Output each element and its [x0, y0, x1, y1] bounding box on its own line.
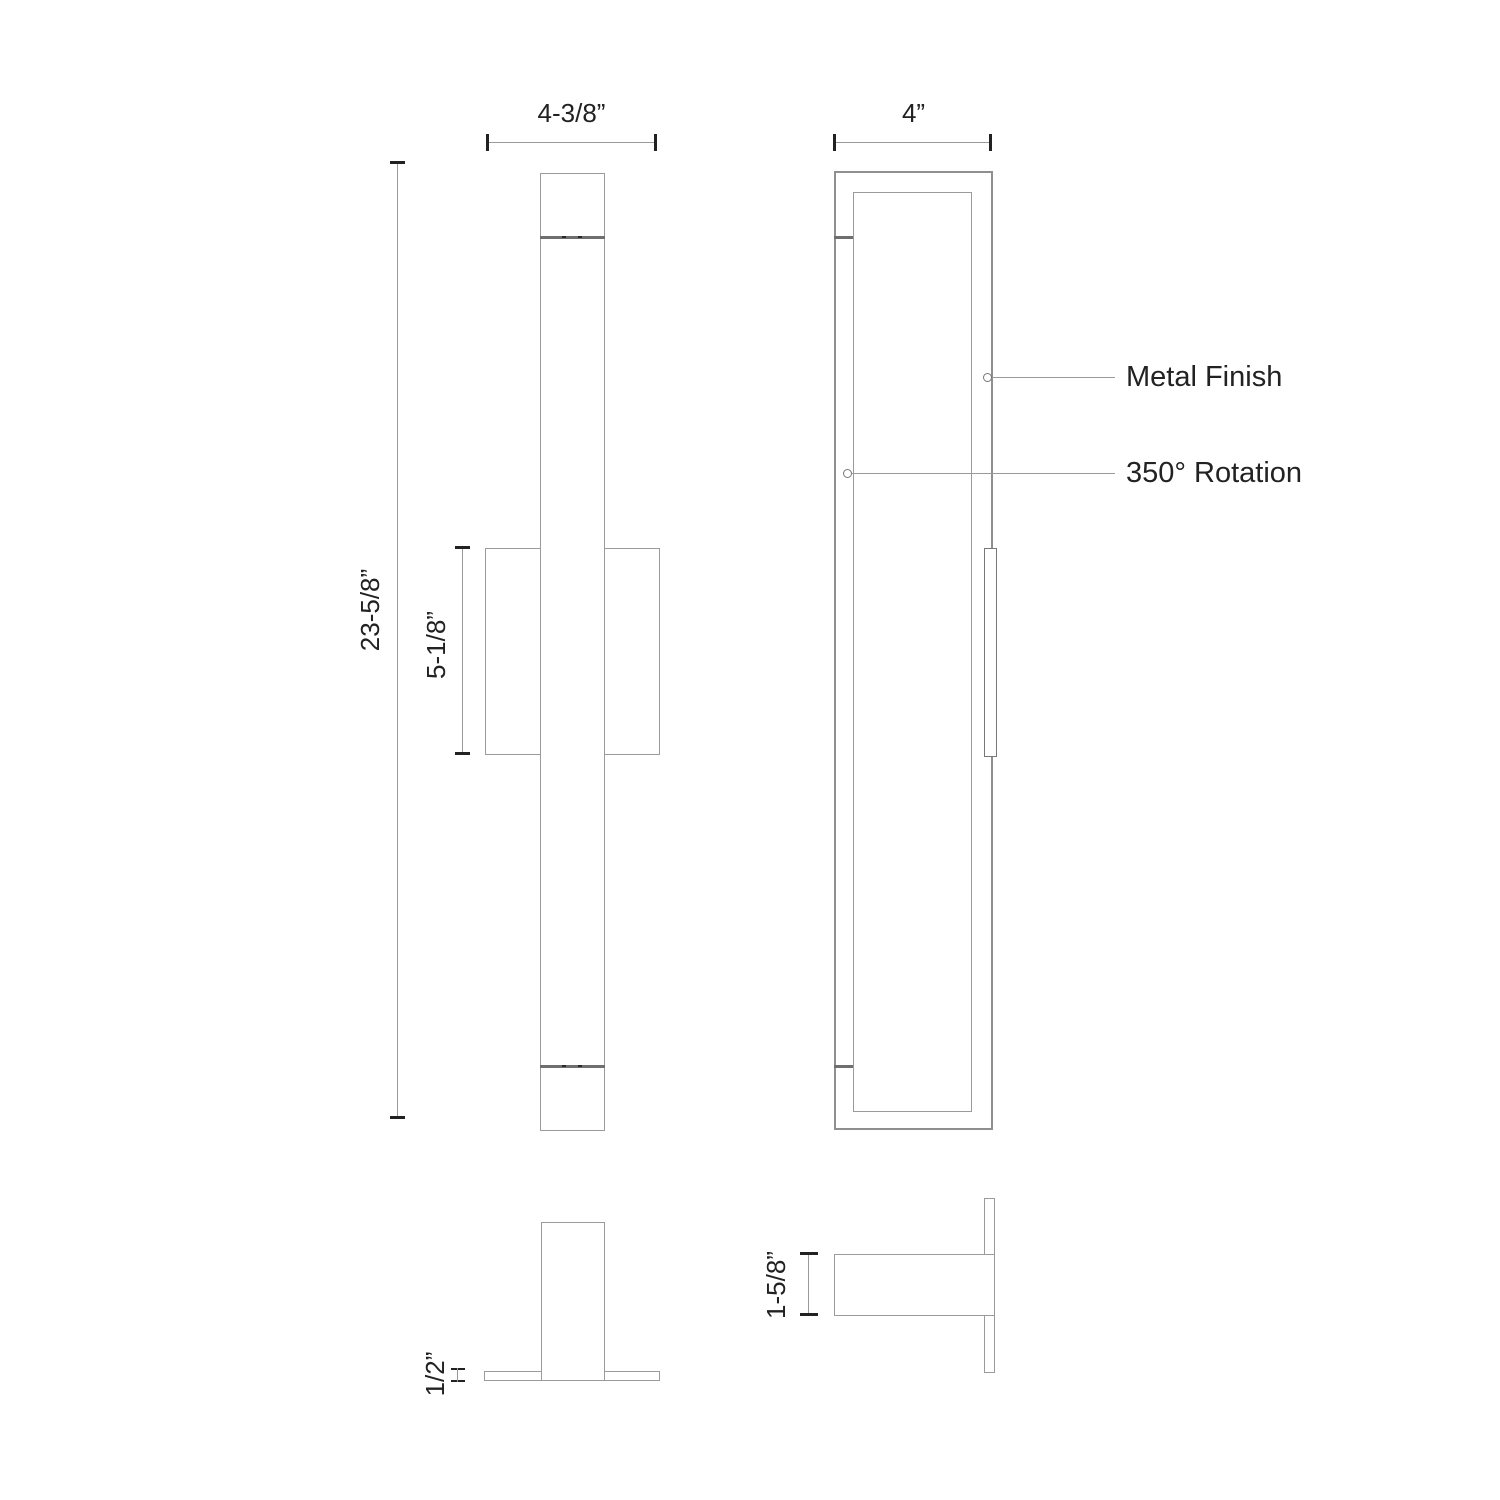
- dim-tick: [654, 134, 657, 151]
- callout-rotation: 350° Rotation: [1126, 456, 1302, 490]
- dim-tick: [455, 752, 470, 755]
- side-depth-dim-line: [835, 142, 992, 143]
- screw-dot: [562, 236, 566, 238]
- dim-tick: [800, 1313, 818, 1316]
- dim-tick: [451, 1380, 465, 1382]
- screw-dot: [562, 1065, 566, 1067]
- side-top-divider: [834, 236, 853, 239]
- dim-tick: [390, 1116, 405, 1119]
- front-fixture-body: [540, 173, 605, 1131]
- screw-dot: [578, 236, 582, 238]
- front-height-dim-line: [397, 163, 398, 1118]
- front-width-dim-label: 4-3/8”: [487, 98, 656, 128]
- plan-fixture-bar: [541, 1222, 605, 1381]
- callout-leader-line: [992, 377, 1115, 378]
- callout-metal-finish: Metal Finish: [1126, 360, 1282, 394]
- plate-thickness-dim-label: 1/2”: [420, 1334, 450, 1414]
- callout-anchor-circle: [843, 469, 852, 478]
- fixture-depth-dim-label: 1-5/8”: [761, 1225, 791, 1345]
- dim-tick: [800, 1252, 818, 1255]
- side-bottom-divider: [834, 1065, 853, 1068]
- side-backplate-edge: [984, 548, 997, 757]
- front-top-divider: [540, 236, 605, 239]
- side-inner-lens: [853, 192, 972, 1112]
- front-backplate-dim-line: [462, 548, 463, 755]
- callout-anchor-circle: [983, 373, 992, 382]
- dim-tick: [833, 134, 836, 151]
- plate-thickness-dim-line: [457, 1368, 458, 1382]
- dim-tick: [486, 134, 489, 151]
- front-width-dim-line: [487, 142, 656, 143]
- side-depth-dim-label: 4”: [835, 98, 992, 128]
- dim-tick: [455, 546, 470, 549]
- dimensional-drawing-canvas: 4-3/8” 23-5/8” 5-1/8” 4” Metal Fini: [0, 0, 1500, 1500]
- plan-side-fixture-bar: [834, 1254, 995, 1316]
- callout-leader-line: [852, 473, 1115, 474]
- front-bottom-divider: [540, 1065, 605, 1068]
- front-backplate-dim-label: 5-1/8”: [421, 585, 451, 705]
- dim-tick: [989, 134, 992, 151]
- front-height-dim-label: 23-5/8”: [355, 540, 385, 680]
- dim-tick: [390, 161, 405, 164]
- fixture-depth-dim-line: [808, 1254, 809, 1316]
- screw-dot: [578, 1065, 582, 1067]
- dim-tick: [451, 1368, 465, 1370]
